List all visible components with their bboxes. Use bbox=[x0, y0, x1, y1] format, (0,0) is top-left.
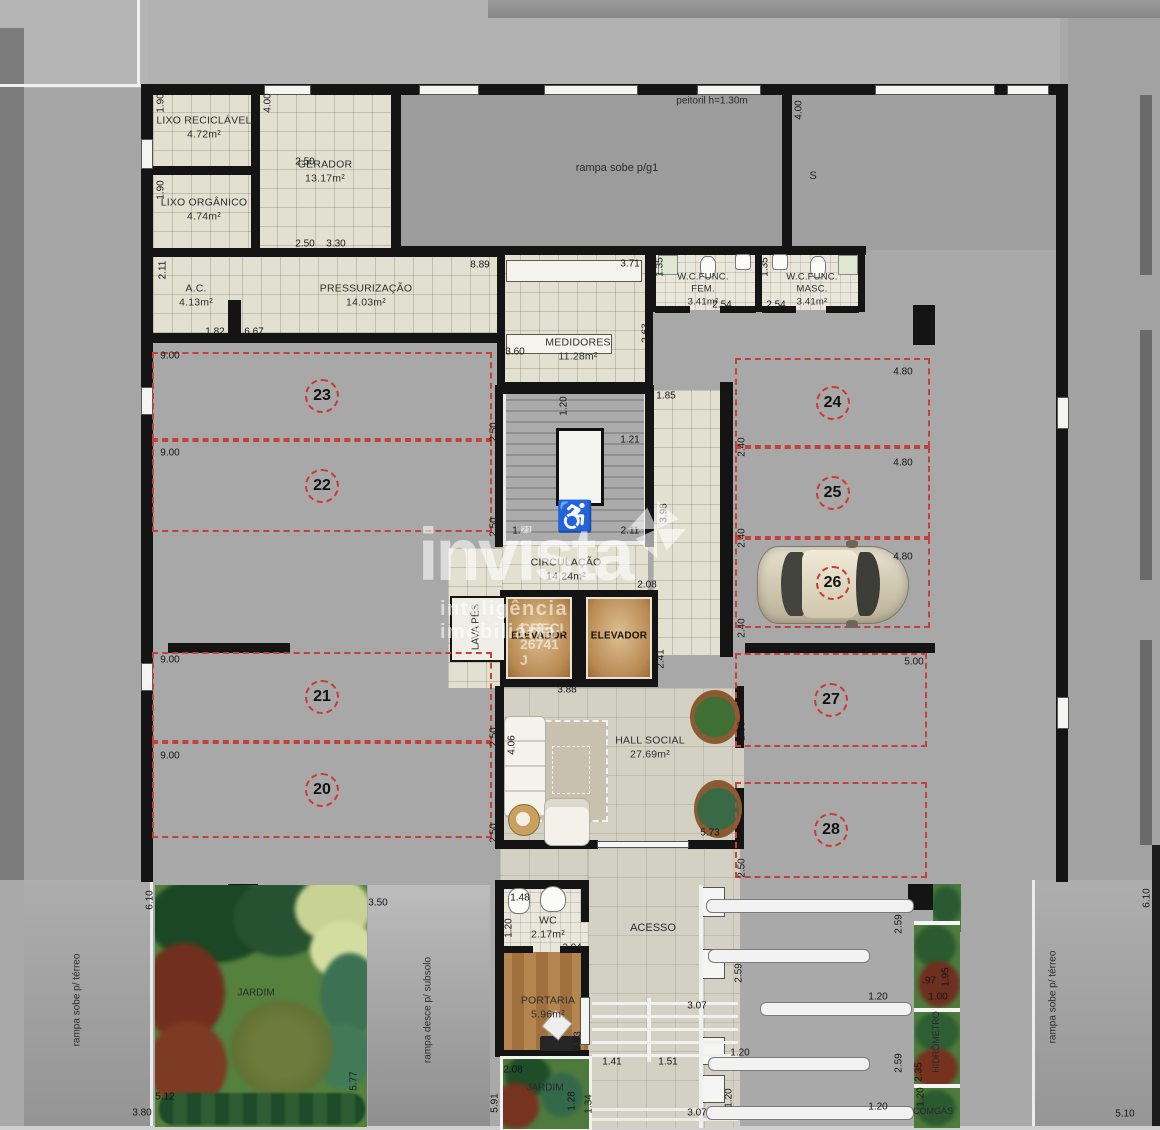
label-elevador-2: ELEVADOR bbox=[587, 630, 651, 643]
label-hidrometro: HIDRÔMETRO bbox=[931, 1011, 941, 1073]
dim-label: 2.40 bbox=[737, 618, 748, 637]
wheelchair-icon: ♿ bbox=[556, 500, 593, 535]
label-portaria: PORTARIA 5.96m² bbox=[508, 994, 588, 1021]
parking-number-27: 27 bbox=[814, 683, 848, 717]
ramp-rail-top bbox=[706, 899, 914, 913]
wall-lixo-gerador bbox=[251, 93, 260, 251]
curb-line-top bbox=[0, 84, 148, 87]
dim-label: 2.50 bbox=[489, 823, 500, 842]
dim-label: 5.77 bbox=[349, 1071, 360, 1090]
dim-label: 1.20 bbox=[559, 396, 570, 415]
dim-label: 6.10 bbox=[1142, 888, 1153, 907]
wall-stub-spot27 bbox=[745, 643, 935, 653]
dim-label: 2.50 bbox=[737, 721, 748, 740]
car-mirror-bottom bbox=[846, 620, 858, 628]
wall-under-pressurizacao bbox=[147, 333, 500, 343]
wall-wc-right bbox=[858, 250, 865, 312]
dim-label: 2.50 bbox=[737, 858, 748, 877]
window-top-3 bbox=[545, 86, 637, 94]
label-rampa-g1: rampa sobe p/g1 bbox=[576, 162, 659, 174]
ramp-s-area bbox=[792, 95, 1056, 250]
window-right-1 bbox=[1058, 398, 1068, 428]
dim-label: 2.50 bbox=[295, 239, 314, 250]
dim-label: 2.11 bbox=[158, 261, 169, 280]
dim-label: 6.67 bbox=[244, 327, 263, 338]
dim-label: .97 bbox=[922, 976, 936, 987]
dim-label: 1.21 bbox=[512, 526, 531, 537]
dim-label: 4.80 bbox=[893, 367, 912, 378]
dim-label: 11.65 bbox=[720, 394, 731, 418]
dim-label: 2.35 bbox=[914, 1062, 925, 1081]
column-garage bbox=[913, 305, 935, 345]
dim-label: 3.30 bbox=[326, 239, 345, 250]
sink-fem bbox=[735, 254, 751, 270]
wall-gerador-right bbox=[391, 84, 401, 254]
bed-separator-1 bbox=[914, 921, 960, 925]
parking-number-28: 28 bbox=[814, 813, 848, 847]
label-pressurizacao: PRESSURIZAÇÃO 14.03m² bbox=[301, 282, 431, 309]
dim-label: 2.50 bbox=[489, 727, 500, 746]
curb-line-left bbox=[137, 0, 140, 84]
parking-number-24: 24 bbox=[816, 386, 850, 420]
hall-armchair bbox=[544, 798, 590, 846]
dim-label: 9.00 bbox=[160, 751, 179, 762]
acesso-step-2 bbox=[592, 1015, 738, 1018]
dim-label: 2.08 bbox=[503, 1065, 522, 1076]
stair-landing bbox=[556, 428, 604, 506]
neighbor-wall-right bbox=[1140, 95, 1152, 275]
floor-plan: ♿ LAVA PÉS bbox=[0, 0, 1160, 1130]
label-gerador: GERADOR 13.17m² bbox=[270, 158, 380, 185]
dim-label: 1.34 bbox=[584, 1094, 595, 1113]
car-front-glass bbox=[856, 552, 880, 616]
wall-right bbox=[1056, 84, 1068, 882]
acesso-step-1 bbox=[592, 1002, 738, 1005]
dim-label: 2.59 bbox=[734, 963, 745, 982]
label-hall-social: HALL SOCIAL 27.69m² bbox=[595, 734, 705, 761]
street-left bbox=[24, 88, 141, 880]
wall-ramp-bottom bbox=[400, 246, 866, 255]
hall-side-table-top bbox=[516, 812, 530, 826]
parking-number-26: 26 bbox=[816, 566, 850, 600]
hedge-row bbox=[159, 1093, 365, 1125]
dim-label: 1.48 bbox=[510, 893, 529, 904]
dim-label: 1.20 bbox=[724, 1088, 735, 1107]
dim-label: 2.59 bbox=[894, 1053, 905, 1072]
dim-label: 1.90 bbox=[156, 180, 167, 199]
dim-label: 2.63 bbox=[641, 323, 652, 342]
dim-label: 3.88 bbox=[557, 685, 576, 696]
wall-lixo-split bbox=[153, 166, 253, 175]
label-jardim-small: JARDIM bbox=[526, 1083, 563, 1094]
dim-label: 1.28 bbox=[567, 1091, 578, 1110]
label-rampa-terreo-right: rampa sobe p/ térreo bbox=[1048, 951, 1059, 1044]
dim-label: 2.50 bbox=[295, 157, 314, 168]
dim-label: 4.00 bbox=[263, 93, 274, 112]
dim-label: 5.73 bbox=[700, 828, 719, 839]
window-left-2 bbox=[142, 388, 152, 414]
dim-label: 1.41 bbox=[602, 1057, 621, 1068]
label-elevador-1: ELEVADOR bbox=[507, 630, 571, 643]
car-mirror-top bbox=[846, 540, 858, 548]
sink-masc bbox=[772, 254, 788, 270]
lavapes-label: LAVA PÉS bbox=[471, 604, 482, 650]
label-wc-masc: W.C.FUNC. MASC. 3.41m² bbox=[779, 271, 845, 308]
dim-label: 1.95 bbox=[941, 967, 952, 986]
window-top-5 bbox=[876, 86, 994, 94]
label-s-marker: S bbox=[809, 170, 816, 182]
dim-label: 1.85 bbox=[656, 391, 675, 402]
label-acesso: ACESSO bbox=[630, 922, 676, 934]
dim-label: 3.07 bbox=[687, 1108, 706, 1119]
window-right-2 bbox=[1058, 698, 1068, 728]
dim-label: 1.35 bbox=[760, 257, 771, 276]
dim-label: 9.00 bbox=[160, 655, 179, 666]
label-comgas: COMGÁS bbox=[913, 1106, 953, 1116]
dim-label: 2.93 bbox=[573, 1031, 584, 1050]
wall-wc-lobby-right bbox=[581, 880, 589, 922]
dim-label: 8.89 bbox=[470, 260, 489, 271]
ramp-terreo-left-area bbox=[24, 880, 152, 1128]
dim-label: 1.20 bbox=[916, 1087, 927, 1106]
window-left-1 bbox=[142, 140, 152, 168]
wall-portaria-left bbox=[495, 952, 504, 1056]
dim-label: 1.20 bbox=[868, 992, 887, 1003]
wall-stair-right bbox=[645, 385, 654, 547]
label-circulacao: CIRCULAÇÃO 14.24m² bbox=[511, 556, 621, 583]
neighbor-wall-right-3 bbox=[1140, 640, 1152, 845]
parking-number-23: 23 bbox=[305, 379, 339, 413]
parking-number-21: 21 bbox=[305, 680, 339, 714]
ramp-rail-2 bbox=[708, 949, 870, 963]
label-rampa-terreo-left: rampa sobe p/ térreo bbox=[72, 954, 83, 1047]
bed-entry-blob bbox=[933, 886, 961, 924]
dim-label: 1.82 bbox=[205, 327, 224, 338]
dim-label: 1.20 bbox=[504, 918, 515, 937]
dim-label: 2.04 bbox=[562, 943, 581, 954]
parking-number-20: 20 bbox=[305, 773, 339, 807]
label-medidores: MEDIDORES 11.28m² bbox=[523, 336, 633, 363]
wall-ramp-right bbox=[782, 88, 792, 252]
label-lixo-organico: LIXO ORGÂNICO 4.74m² bbox=[156, 196, 252, 223]
wall-stair-top bbox=[495, 385, 654, 394]
dim-label: 1.20 bbox=[868, 1102, 887, 1113]
dim-label: 4.80 bbox=[893, 552, 912, 563]
dim-label: 2.54 bbox=[766, 300, 785, 311]
dim-label: 3.71 bbox=[620, 259, 639, 270]
dim-label: 2.50 bbox=[489, 422, 500, 441]
dim-label: 9.00 bbox=[160, 448, 179, 459]
dim-label: 2.54 bbox=[712, 300, 731, 311]
dim-label: 1.90 bbox=[156, 93, 167, 112]
dim-label: 2.40 bbox=[737, 437, 748, 456]
dim-label: 2.08 bbox=[637, 580, 656, 591]
curb-right-ramp bbox=[1032, 880, 1035, 1128]
dim-label: 5.10 bbox=[1115, 1109, 1134, 1120]
dim-label: 2.40 bbox=[737, 528, 748, 547]
dim-label: 4.80 bbox=[893, 458, 912, 469]
dim-label: 2.50 bbox=[489, 517, 500, 536]
label-jardim-big: JARDIM bbox=[237, 988, 274, 999]
dim-label: 4.06 bbox=[507, 735, 518, 754]
dim-label: 3.50 bbox=[368, 898, 387, 909]
dim-label: 2.11 bbox=[621, 526, 640, 537]
dim-label: 1.21 bbox=[620, 435, 639, 446]
neighbor-wall-right-2 bbox=[1140, 330, 1152, 580]
curb-left-ramp bbox=[150, 880, 153, 1128]
label-lixo-reciclavel: LIXO RECICLÁVEL 4.72m² bbox=[156, 114, 252, 141]
label-rampa-subsolo: rampa desce p/ subsolo bbox=[423, 957, 434, 1063]
dim-label: 2.59 bbox=[894, 914, 905, 933]
edge-bar-right bbox=[1152, 845, 1160, 1130]
parking-number-22: 22 bbox=[305, 469, 339, 503]
acesso-handrail bbox=[647, 998, 651, 1062]
label-peitoril: peitoril h=1.30m bbox=[676, 96, 747, 107]
jardim-big-area bbox=[155, 885, 367, 1127]
dim-label: 3.80 bbox=[132, 1108, 151, 1119]
dim-label: 1.51 bbox=[658, 1057, 677, 1068]
ramp-rail-4 bbox=[708, 1057, 870, 1071]
ramp-rail-3 bbox=[760, 1002, 912, 1016]
wall-medidores-left bbox=[497, 250, 505, 390]
olive-tree bbox=[231, 1001, 333, 1097]
window-top-4 bbox=[698, 86, 760, 94]
dim-label: 6.10 bbox=[145, 890, 156, 909]
dim-label: 4.00 bbox=[794, 100, 805, 119]
dim-label: 5.00 bbox=[904, 657, 923, 668]
dim-label: 5.12 bbox=[155, 1092, 174, 1103]
label-wc-lobby: WC 2.17m² bbox=[518, 914, 578, 941]
parking-number-25: 25 bbox=[816, 476, 850, 510]
acesso-step-4 bbox=[592, 1041, 738, 1044]
dim-label: 2.41 bbox=[656, 649, 667, 668]
dim-label: 1.35 bbox=[655, 257, 666, 276]
window-top-2 bbox=[420, 86, 478, 94]
entry-pilaster-4 bbox=[702, 1076, 724, 1102]
hall-rug-pattern bbox=[552, 746, 590, 794]
hall-entry-glass bbox=[598, 842, 688, 847]
toilet-wc-lobby bbox=[540, 886, 566, 912]
label-ac: A.C. 4.13m² bbox=[161, 282, 231, 309]
dim-label: 9.00 bbox=[160, 351, 179, 362]
dim-label: 3.98 bbox=[659, 503, 670, 522]
dim-label: 1.20 bbox=[730, 1048, 749, 1059]
dim-label: 3.60 bbox=[505, 347, 524, 358]
wall-corridor-right bbox=[720, 382, 733, 657]
dim-label: 3.07 bbox=[687, 1001, 706, 1012]
dim-label: 5.91 bbox=[490, 1093, 501, 1112]
hall-sofa bbox=[504, 716, 546, 818]
window-top-6 bbox=[1008, 86, 1048, 94]
wall-wc-lobby-top bbox=[495, 880, 589, 889]
wall-portaria-right bbox=[581, 952, 589, 998]
window-left-3 bbox=[142, 664, 152, 690]
street-top-band bbox=[488, 0, 1160, 18]
acesso-step-3 bbox=[592, 1028, 738, 1031]
dim-label: 1.00 bbox=[928, 992, 947, 1003]
